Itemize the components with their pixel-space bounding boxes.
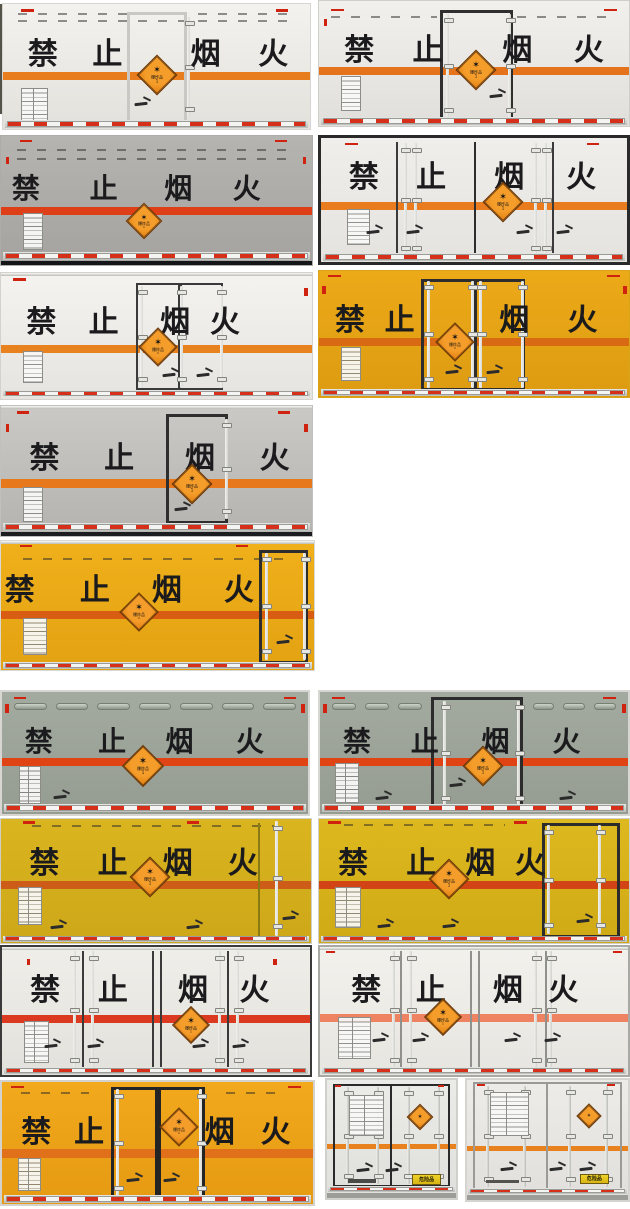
reflector-mark [304,424,308,432]
hinge-rod [73,951,76,1070]
warning-char-4: 火 [260,444,290,474]
reflective-strip [4,1195,312,1202]
hinge-bracket [390,1008,400,1013]
hinge-bracket [531,148,541,153]
placard-content: ✶爆炸品1 [136,864,163,891]
reflective-segments [323,390,626,395]
warning-char-1: 禁 [30,444,60,474]
reflective-strip [5,120,309,128]
placard-content: ✶爆炸品1 [470,753,497,780]
hinge-rod [409,951,412,1070]
license-text-strip [486,1180,518,1184]
hinge-bracket [89,956,99,961]
hinge-rod [218,951,221,1070]
vent-louvre-row [533,703,616,710]
warning-char-4: 火 [236,728,264,756]
reflective-strip [323,253,626,260]
hinge-bracket [412,148,422,153]
reflector-mark [6,157,10,165]
reflector-mark [5,704,9,713]
hinge-bracket [412,246,422,251]
hinge-bracket [566,1090,576,1095]
warning-char-3: 烟 [152,576,182,606]
hinge-bracket [222,467,232,472]
hinge-bracket [273,924,283,929]
placard-content: ✶爆炸品1 [129,752,157,780]
hinge-bracket [114,1094,124,1099]
warning-char-2: 止 [385,306,415,336]
truck-photo-11-mustard-box-van-side-right-door: 禁止烟火✶爆炸品1 [0,818,312,944]
door-handle [560,796,573,800]
truck-photo-16-small-truck-rear-dark-frame: ✶危险品 [325,1078,458,1200]
vent-slot-row [517,16,616,18]
warning-char-3: 烟 [502,36,532,66]
hinge-bracket [89,1058,99,1063]
hinge-bracket [177,377,187,382]
license-text-strip [348,1179,376,1183]
hinge-bracket [407,956,417,961]
door-handle [556,230,569,234]
hinge-bracket [477,285,487,290]
door-handle [375,796,388,800]
label-grid-divider [28,767,29,802]
warning-char-2: 止 [98,976,128,1006]
warning-char-2: 止 [92,40,122,70]
reflective-strip [321,936,628,942]
danger-goods-plate: 危险品 [580,1174,609,1184]
reflective-strip [468,1188,627,1194]
hinge-bracket [390,1058,400,1063]
reflector-mark [623,286,627,294]
hinge-rod [544,143,547,257]
hinge-bracket [138,290,148,295]
door-seam [552,142,554,256]
reflector-mark [324,19,328,27]
hinge-bracket [518,377,528,382]
reflector-mark [11,1086,23,1088]
hinge-rod [116,1089,119,1196]
hinge-bracket [477,377,487,382]
truck-photo-grid: 禁止烟火✶爆炸品1禁止烟火✶爆炸品1禁止烟火✶爆炸品1禁止烟火✶爆炸品1禁止烟火… [0,0,630,1209]
warning-char-2: 止 [98,849,128,879]
hinge-bracket [544,878,554,883]
info-label-grid [18,887,42,925]
placard-class-number: 1 [155,80,158,84]
reflector-mark [21,9,33,12]
hinge-rod [517,701,520,807]
hinge-bracket [603,1090,613,1095]
hinge-bracket [215,956,225,961]
hinge-rod [443,701,446,807]
hinge-bracket [444,18,454,23]
door-handle [443,923,456,927]
reflector-mark [514,821,526,823]
label-grid-divider [34,1022,35,1062]
hinge-rod [265,553,268,660]
reflector-mark [278,411,290,414]
placard-content: ✶ [411,1108,428,1125]
hinge-bracket [424,332,434,337]
info-label-grid [338,1017,371,1059]
reflector-mark [603,697,615,699]
hinge-bracket [262,649,272,654]
hinge-rod [605,1086,608,1187]
hinge-bracket [566,1134,576,1139]
warning-char-4: 火 [515,849,545,879]
reflector-mark [27,959,31,965]
reflective-segments [325,254,624,259]
door-handle [88,1043,101,1047]
warning-char-2: 止 [416,163,446,193]
hinge-bracket [234,1008,244,1013]
warning-char-4: 火 [240,976,270,1006]
hinge-bracket [506,18,516,23]
hinge-bracket [531,246,541,251]
reflective-segments [5,391,309,396]
hinge-bracket [301,604,311,609]
hinge-bracket [262,604,272,609]
reflective-strip [3,252,311,260]
warning-char-1: 禁 [12,175,40,203]
reflective-strip [321,389,628,395]
placard-class-number: 1 [143,226,145,229]
hinge-bracket [444,108,454,113]
info-label-grid [335,887,362,927]
vent-slot-row [226,1092,282,1094]
warning-char-4: 火 [258,40,288,70]
placard-class-number: 1 [190,1030,192,1033]
hinge-bracket [531,198,541,203]
door-seam [152,951,154,1069]
placard-class-number: 1 [448,883,451,887]
hinge-rod [547,825,550,934]
reflective-strip [322,1067,627,1073]
truck-photo-5-white-box-van-side-double-doors: 禁止烟火✶爆炸品1 [0,272,313,400]
reflector-mark [284,697,296,699]
info-label-grid [23,618,47,655]
reflector-mark [288,1086,300,1088]
reflector-mark [273,959,277,965]
placard-content: ✶爆炸品1 [462,56,489,83]
warning-char-2: 止 [413,36,443,66]
hinge-bracket [603,1134,613,1139]
reflective-strip [3,390,311,396]
chassis-shadow [327,1193,456,1198]
door-handle [233,1043,246,1047]
hinge-bracket [542,246,552,251]
vent-louvre [563,703,585,710]
explosive-placard: ✶爆炸品1 [172,1006,210,1044]
warning-char-3: 烟 [191,40,221,70]
warning-char-2: 止 [80,576,110,606]
truck-photo-9-sage-box-van-side: 禁止烟火✶爆炸品1 [0,690,310,816]
reflector-mark [607,1084,615,1086]
reflective-segments [5,253,309,259]
label-grid-divider [364,1096,365,1135]
reflective-segments [323,118,626,124]
warning-char-3: 烟 [165,728,193,756]
hinge-bracket [401,148,411,153]
reflective-strip [4,804,307,811]
reflector-mark [331,9,343,12]
roof-sill [1,541,314,544]
placard-content: ✶爆炸品1 [143,62,170,89]
roof-sill [1,273,312,276]
warning-char-4: 火 [233,175,261,203]
hinge-bracket [197,1186,207,1191]
hinge-bracket [177,290,187,295]
vent-louvre [398,703,422,710]
hinge-bracket [234,1058,244,1063]
hinge-bracket [532,1058,542,1063]
vent-slot-row [23,558,198,560]
door-handle [504,1038,517,1042]
hinge-rod [392,951,395,1070]
hinge-bracket [404,1134,414,1139]
door-seam [478,951,480,1069]
warning-char-1: 禁 [30,976,60,1006]
door-seam [400,951,402,1069]
explosive-placard: ✶爆炸品1 [122,745,164,787]
warning-char-4: 火 [568,306,598,336]
reflective-segments [5,524,309,530]
hinge-bracket [222,509,232,514]
warning-char-1: 禁 [28,40,58,70]
reflective-segments [324,1068,625,1073]
reflective-segments [6,1068,307,1073]
label-grid-divider [345,764,346,802]
hinge-bracket [215,1008,225,1013]
placard-class-number: 1 [141,771,144,775]
hinge-bracket [185,107,195,112]
vent-louvre-row [332,703,421,710]
placard-class-number: 1 [149,882,152,886]
placard-content: ✶爆炸品1 [145,334,171,360]
door-seam [227,951,229,1069]
door-handle [50,925,63,929]
warning-char-2: 止 [411,728,439,756]
info-label-grid [24,1021,49,1063]
placard-content: ✶爆炸品1 [132,209,156,233]
hinge-rod [471,281,474,388]
vent-slot-row [32,825,274,827]
hinge-rod [236,951,239,1070]
info-label-grid [19,766,41,803]
info-label-grid [23,487,44,523]
explosion-icon: ✶ [587,1114,591,1119]
roof-sill [1,406,312,409]
vent-louvre [14,703,47,710]
warning-char-1: 禁 [21,1118,51,1148]
hinge-rod [275,821,278,935]
warning-char-1: 禁 [29,849,59,879]
hinge-bracket [544,830,554,835]
hinge-bracket [547,1058,557,1063]
vent-louvre [180,703,213,710]
warning-char-4: 火 [548,976,578,1006]
reflective-segments [470,1189,625,1194]
reflector-mark [328,275,340,278]
vent-louvre [533,703,555,710]
placard-content: ✶爆炸品1 [179,471,206,498]
door-handle [372,1038,385,1042]
hinge-bracket [401,198,411,203]
reflector-mark [607,275,619,278]
hinge-bracket [506,108,516,113]
explosive-placard: ✶爆炸品1 [424,998,462,1036]
warning-char-3: 烟 [499,306,529,336]
reflector-mark [20,140,32,143]
explosion-icon: ✶ [417,1114,422,1120]
reflector-mark [301,704,305,713]
warning-stripe [1,207,312,215]
placard-class-number: 1 [482,771,485,775]
placard-content: ✶爆炸品1 [442,329,468,355]
vent-louvre [222,703,255,710]
reflector-mark [477,1084,485,1086]
hinge-bracket [441,705,451,710]
reflective-segments [5,663,311,668]
warning-char-3: 烟 [493,976,523,1006]
warning-char-1: 禁 [5,576,35,606]
hinge-bracket [404,1091,414,1096]
warning-char-4: 火 [228,849,258,879]
warning-char-4: 火 [210,308,240,338]
hinge-bracket [273,826,283,831]
vent-louvre [56,703,89,710]
hinge-rod [407,1087,410,1184]
warning-char-4: 火 [261,1118,291,1148]
placard-content: ✶爆炸品1 [166,1114,192,1140]
reflective-strip [3,523,311,531]
warning-char-3: 烟 [465,849,495,879]
warning-char-3: 烟 [178,976,208,1006]
placard-content: ✶爆炸品1 [431,1005,456,1030]
warning-char-1: 禁 [338,849,368,879]
door-handle [377,923,390,927]
label-grid-divider [506,1093,507,1135]
reflective-strip [4,1067,309,1073]
info-label-grid [341,347,362,382]
hinge-rod [225,419,228,519]
reflective-strip [322,804,627,811]
reflector-mark [335,1085,341,1087]
reflector-mark [332,697,344,699]
hinge-bracket [444,64,454,69]
warning-char-3: 烟 [164,175,192,203]
hinge-bracket [441,751,451,756]
placard-content: ✶爆炸品1 [490,189,517,216]
door-seam [470,951,472,1069]
truck-photo-15-orange-box-van-side-center-doors: 禁止烟火✶爆炸品1 [0,1080,315,1206]
chassis-shadow [467,1195,628,1200]
hinge-rod [598,825,601,934]
hinge-bracket [547,1008,557,1013]
vent-louvre [263,703,296,710]
hinge-bracket [532,956,542,961]
hinge-bracket [542,148,552,153]
hinge-bracket [217,377,227,382]
reflective-segments [7,121,307,127]
reflective-segments [6,1196,310,1201]
door-handle [406,230,419,234]
placard-class-number: 1 [191,489,194,493]
hinge-bracket [185,21,195,26]
hinge-bracket [114,1141,124,1146]
info-label-grid [21,88,48,123]
info-label-grid [341,76,362,111]
reflector-mark [587,143,599,145]
hinge-bracket [234,956,244,961]
hinge-bracket [518,285,528,290]
reflector-mark [304,288,308,296]
hinge-bracket [401,246,411,251]
hinge-bracket [515,796,525,801]
reflector-mark [438,1085,444,1087]
placard-content: ✶爆炸品1 [179,1013,204,1038]
hinge-bracket [424,377,434,382]
door-seam [396,142,398,256]
info-label-grid [347,209,370,246]
roof-sill [320,947,628,950]
hinge-bracket [515,705,525,710]
truck-photo-7-silver-box-van-side-single-door: 禁止烟火✶爆炸品1 [0,405,313,537]
truck-photo-14-white-rear-doors-silver-frame: 禁止烟火✶爆炸品1 [318,945,630,1077]
door-handle [192,1043,205,1047]
placard-class-number: 1 [474,74,477,78]
hinge-bracket [222,423,232,428]
hinge-bracket [566,1177,576,1182]
reflector-mark [323,704,327,713]
door-handle [283,916,296,920]
truck-photo-4-rear-double-doors-dark-frame: 禁止烟火✶爆炸品1 [318,135,630,265]
vent-slot-row [344,824,505,826]
hinge-bracket [424,285,434,290]
chassis-shadow [1,261,312,265]
reflector-mark [17,411,29,414]
placard-class-number: 1 [138,617,140,620]
truck-photo-10-sage-box-van-side-center-door: 禁止烟火✶爆炸品1 [318,690,630,816]
info-label-grid [23,213,44,250]
hinge-rod [446,14,449,119]
label-grid-divider [346,888,347,926]
warning-char-2: 止 [74,1118,104,1148]
reflector-mark [345,143,357,145]
hinge-bracket [521,1177,531,1182]
hinge-bracket [515,751,525,756]
warning-char-4: 火 [574,36,604,66]
danger-goods-plate: 危险品 [412,1174,441,1184]
door-seam [82,951,84,1069]
warning-char-4: 火 [552,728,580,756]
placard-class-number: 1 [502,207,505,211]
label-grid-divider [28,888,29,924]
hinge-rod [437,1087,440,1184]
hinge-rod [91,951,94,1070]
info-label-grid [490,1092,529,1136]
reflective-strip [3,936,310,942]
truck-photo-13-white-rear-doors-dark-frame: 禁止烟火✶爆炸品1 [0,945,312,1077]
vent-louvre [332,703,356,710]
hinge-bracket [217,290,227,295]
hinge-bracket [70,956,80,961]
hinge-bracket [390,956,400,961]
warning-stripe [1,479,312,488]
door-handle [366,230,379,234]
door-seam [474,142,476,256]
hinge-bracket [477,332,487,337]
hinge-rod [427,281,430,388]
